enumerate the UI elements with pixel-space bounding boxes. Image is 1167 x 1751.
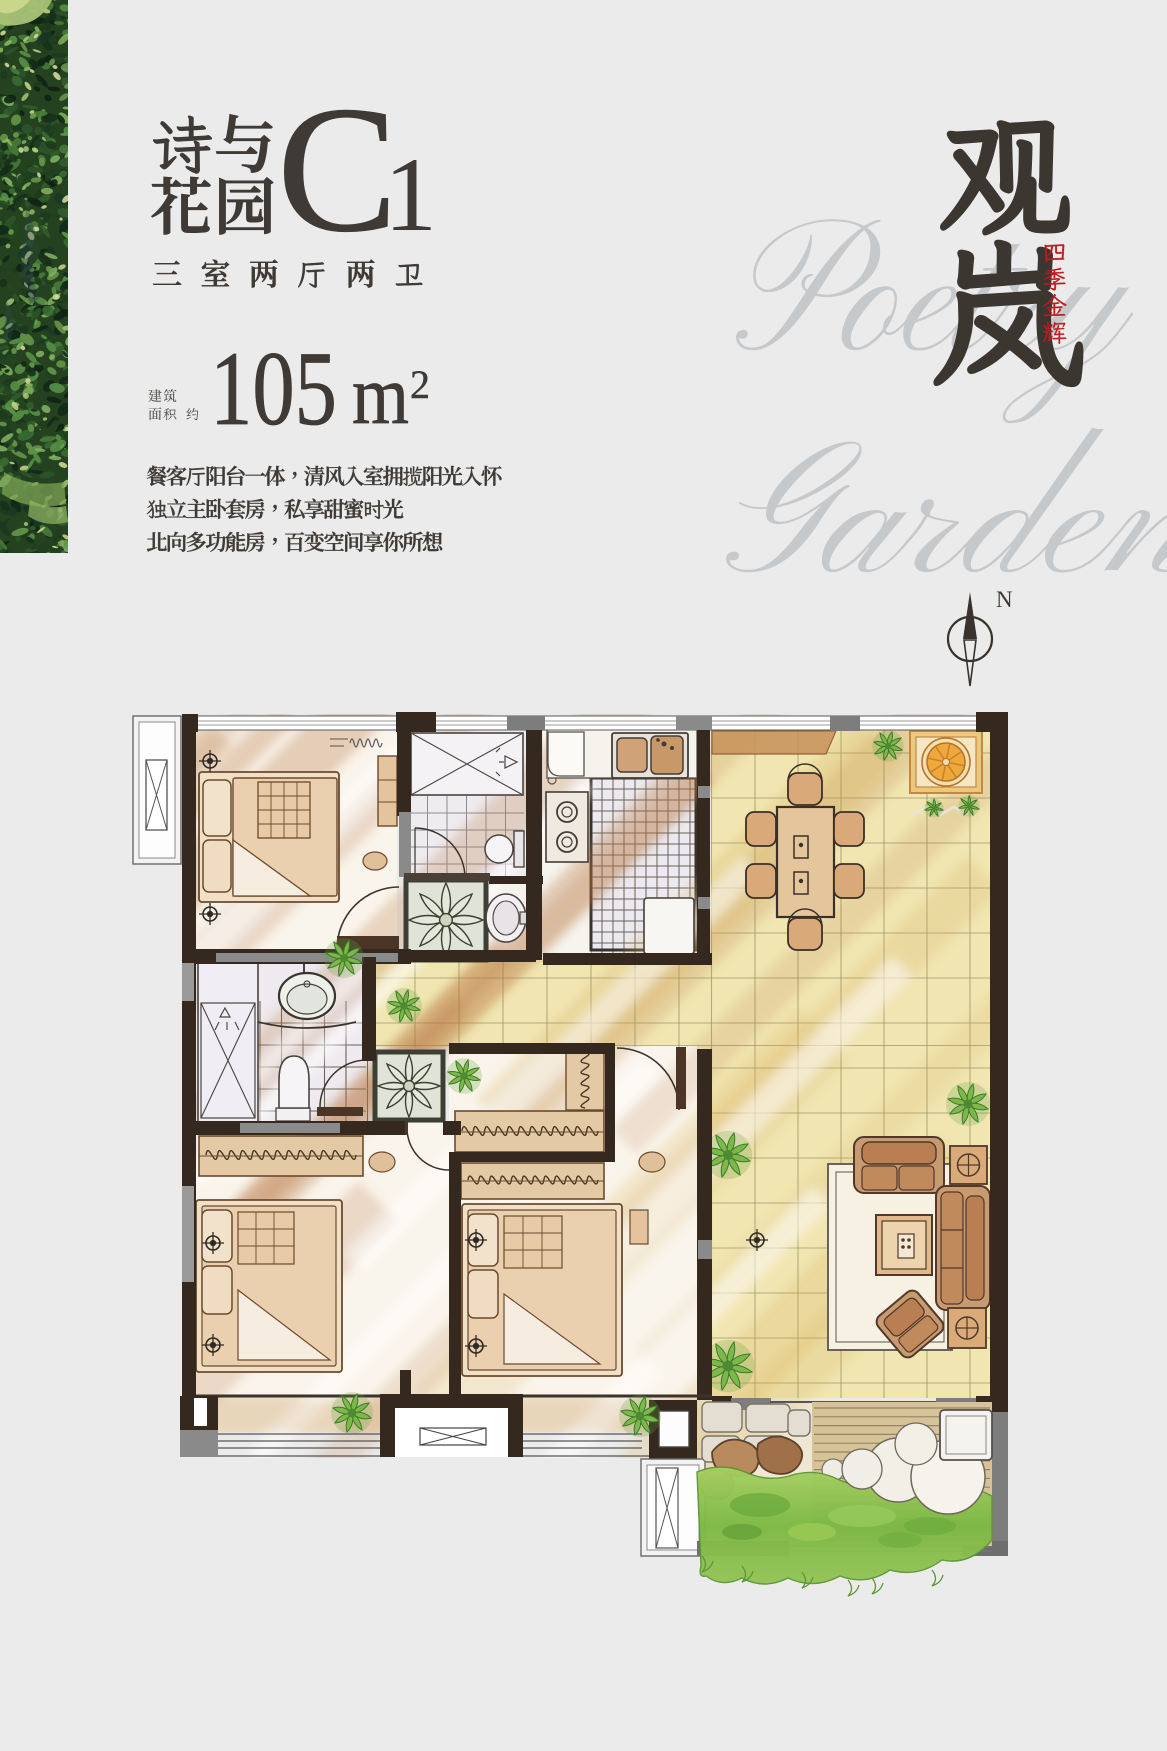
svg-text:m: m [352,349,409,442]
svg-text:1: 1 [384,136,437,253]
svg-text:105: 105 [210,330,337,447]
svg-text:C: C [277,70,398,270]
svg-text:2: 2 [410,362,430,407]
svg-text:N: N [996,587,1013,612]
